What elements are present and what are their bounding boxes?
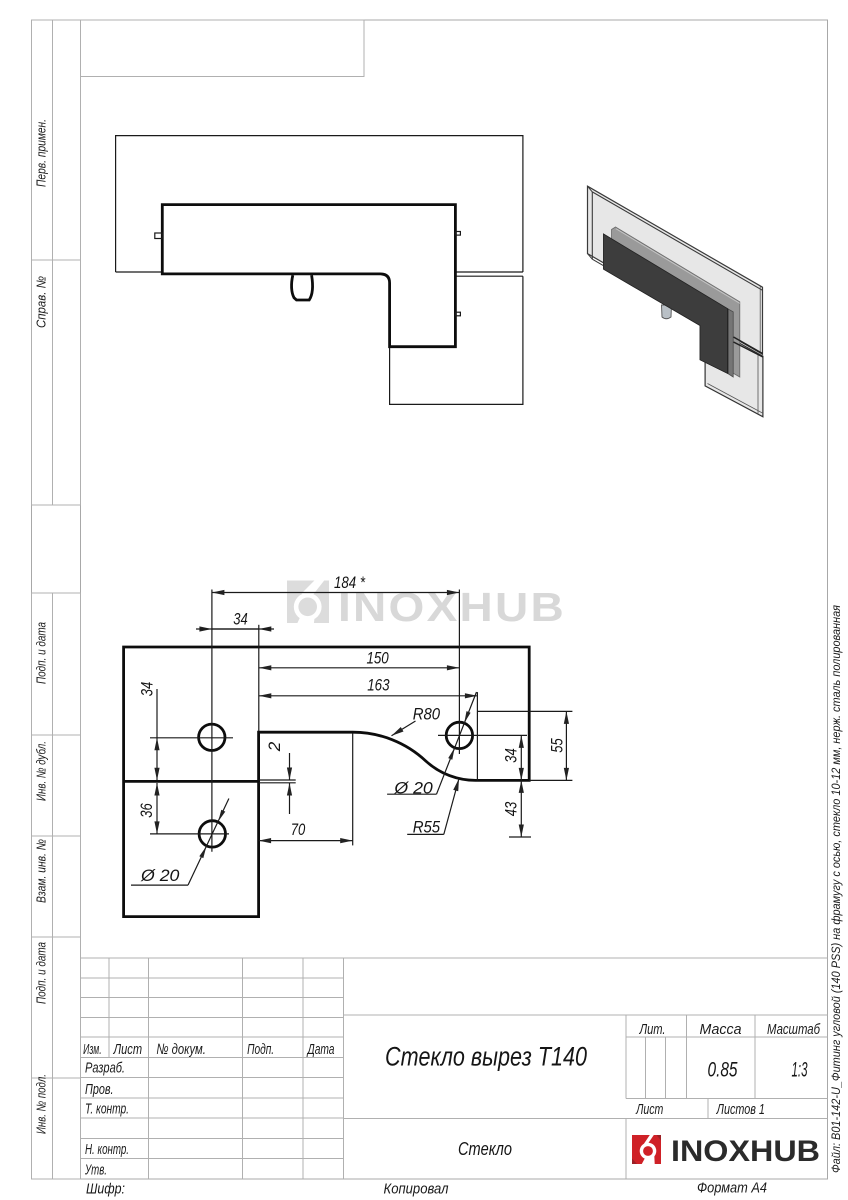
svg-text:Перв. примен.: Перв. примен. — [34, 119, 49, 187]
svg-text:Лист: Лист — [113, 1041, 142, 1058]
svg-text:Копировал: Копировал — [384, 1181, 449, 1198]
svg-text:163: 163 — [367, 676, 390, 695]
svg-text:Дата: Дата — [306, 1041, 334, 1058]
svg-text:R55: R55 — [413, 818, 441, 837]
svg-text:Стекло вырез Т140: Стекло вырез Т140 — [385, 1042, 587, 1072]
svg-text:INOXHUB: INOXHUB — [338, 584, 566, 630]
svg-text:Изм.: Изм. — [83, 1041, 102, 1058]
svg-text:43: 43 — [502, 801, 521, 816]
svg-text:Подп.: Подп. — [247, 1041, 274, 1058]
svg-text:Файл: В01-142-U_Фитинг угловой: Файл: В01-142-U_Фитинг угловой (140 PSS)… — [829, 604, 843, 1173]
svg-text:Инв. № дубл.: Инв. № дубл. — [34, 741, 49, 801]
svg-text:R80: R80 — [413, 705, 441, 724]
svg-text:70: 70 — [291, 820, 306, 839]
svg-text:Подп. и дата: Подп. и дата — [34, 942, 49, 1004]
svg-text:34: 34 — [233, 610, 248, 629]
svg-text:55: 55 — [548, 738, 567, 753]
svg-text:36: 36 — [137, 803, 156, 818]
svg-text:Листов 1: Листов 1 — [716, 1101, 765, 1118]
svg-text:Лит.: Лит. — [639, 1021, 666, 1038]
svg-text:Утв.: Утв. — [84, 1162, 107, 1179]
svg-text:Н. контр.: Н. контр. — [85, 1141, 129, 1158]
svg-text:Инв. № подл.: Инв. № подл. — [34, 1074, 49, 1134]
svg-text:1:3: 1:3 — [792, 1059, 808, 1082]
svg-text:Пров.: Пров. — [85, 1081, 114, 1098]
svg-text:Подп. и дата: Подп. и дата — [34, 622, 49, 684]
svg-text:Масштаб: Масштаб — [767, 1021, 820, 1038]
svg-text:Взам. инв. №: Взам. инв. № — [34, 839, 49, 903]
svg-text:0.85: 0.85 — [708, 1059, 738, 1082]
svg-text:Разраб.: Разраб. — [85, 1060, 125, 1077]
svg-text:INOXHUB: INOXHUB — [671, 1135, 820, 1168]
svg-text:Масса: Масса — [700, 1021, 742, 1038]
svg-text:184 *: 184 * — [334, 573, 366, 592]
svg-text:№ докум.: № докум. — [156, 1041, 206, 1058]
svg-text:Стекло: Стекло — [458, 1139, 512, 1159]
svg-text:Ø 20: Ø 20 — [140, 866, 180, 885]
svg-text:2: 2 — [265, 741, 284, 752]
svg-text:34: 34 — [138, 682, 157, 697]
svg-text:34: 34 — [502, 748, 521, 763]
svg-text:Лист: Лист — [635, 1101, 663, 1118]
svg-text:Шифр:: Шифр: — [86, 1181, 125, 1198]
svg-text:150: 150 — [366, 649, 389, 668]
svg-text:Справ. №: Справ. № — [34, 276, 49, 328]
svg-text:Т. контр.: Т. контр. — [85, 1101, 129, 1118]
svg-text:Формат А4: Формат А4 — [697, 1180, 767, 1197]
